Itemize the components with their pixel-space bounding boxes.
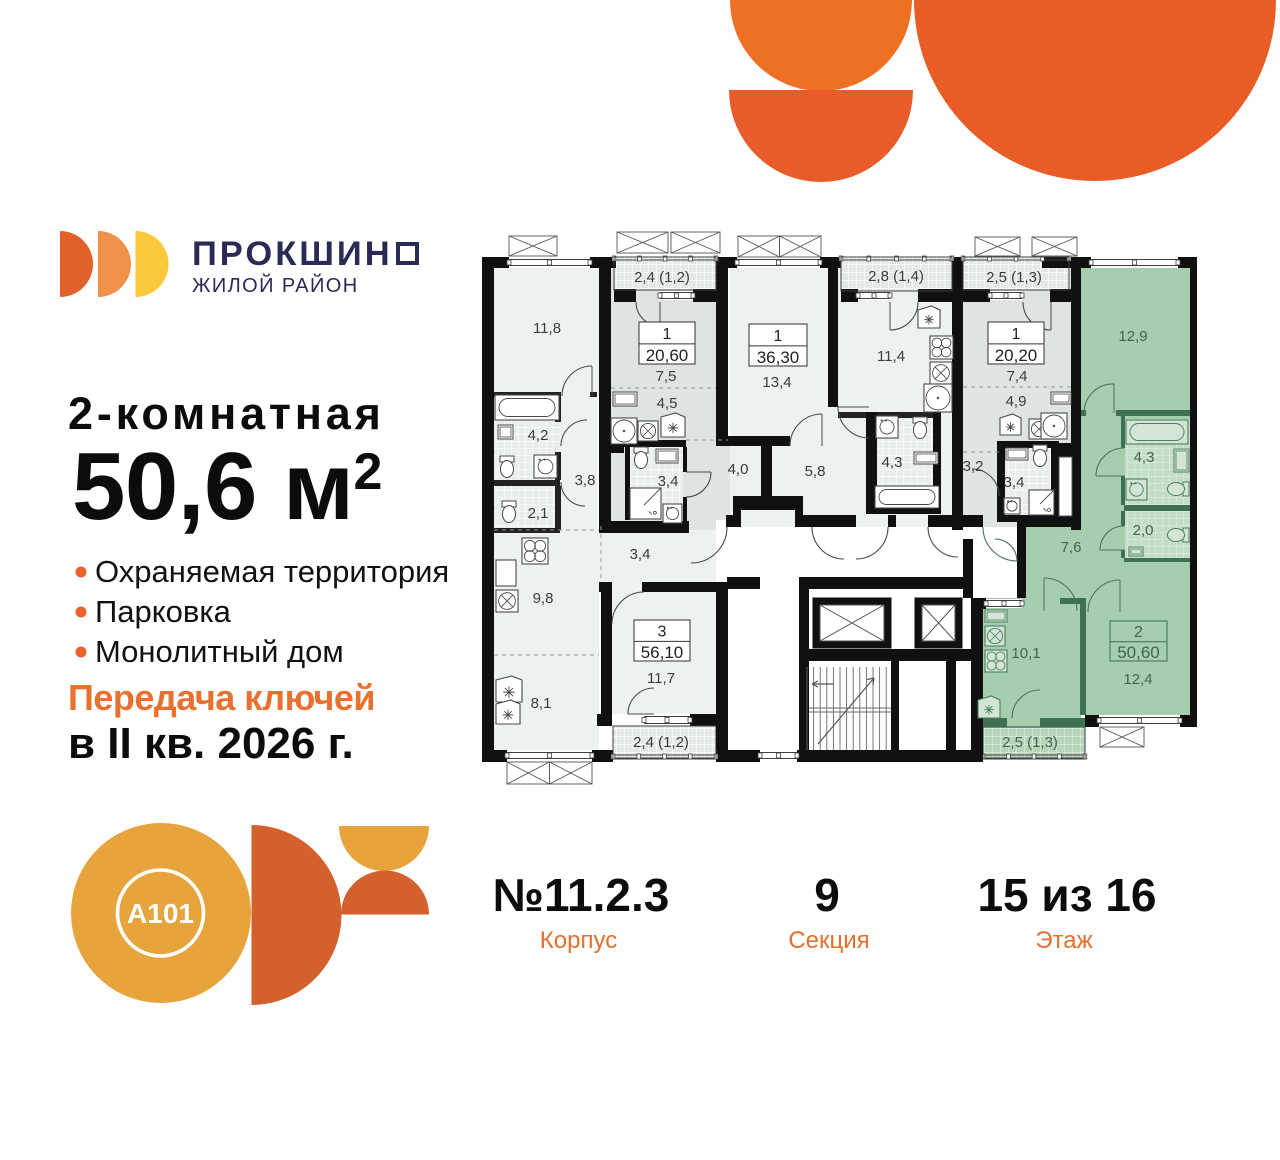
svg-text:4,2: 4,2	[528, 427, 549, 444]
svg-text:4,9: 4,9	[1006, 393, 1027, 410]
svg-text:1: 1	[1012, 326, 1021, 343]
svg-text:11,8: 11,8	[533, 320, 561, 337]
svg-text:1: 1	[774, 328, 783, 345]
svg-text:13,4: 13,4	[762, 374, 791, 391]
svg-text:11,4: 11,4	[877, 348, 905, 365]
svg-text:2: 2	[1134, 624, 1143, 641]
svg-text:3,4: 3,4	[1004, 474, 1025, 491]
svg-text:2,8 (1,4): 2,8 (1,4)	[868, 268, 924, 285]
svg-text:3,2: 3,2	[963, 458, 984, 475]
svg-text:2,5 (1,3): 2,5 (1,3)	[986, 269, 1042, 286]
svg-text:9,8: 9,8	[533, 590, 554, 607]
svg-text:4,0: 4,0	[728, 461, 749, 478]
svg-text:12,4: 12,4	[1123, 671, 1152, 688]
svg-text:3: 3	[658, 623, 667, 640]
svg-text:3,8: 3,8	[575, 472, 596, 489]
svg-text:7,4: 7,4	[1007, 368, 1028, 385]
svg-text:4,3: 4,3	[882, 454, 903, 471]
svg-text:10,1: 10,1	[1011, 645, 1040, 662]
svg-text:4,5: 4,5	[657, 395, 678, 412]
svg-text:7,6: 7,6	[1061, 539, 1082, 556]
svg-text:2,4 (1,2): 2,4 (1,2)	[633, 734, 689, 751]
svg-text:8,1: 8,1	[531, 695, 552, 712]
svg-text:36,30: 36,30	[757, 348, 800, 367]
svg-text:A101: A101	[127, 898, 194, 929]
svg-text:50,60: 50,60	[1117, 643, 1160, 662]
svg-text:2,1: 2,1	[528, 505, 549, 522]
svg-text:3,4: 3,4	[658, 473, 679, 490]
svg-text:20,60: 20,60	[646, 346, 689, 365]
svg-text:2,5 (1,3): 2,5 (1,3)	[1002, 734, 1058, 751]
svg-text:7,5: 7,5	[656, 368, 677, 385]
svg-text:20,20: 20,20	[995, 346, 1038, 365]
svg-text:56,10: 56,10	[641, 643, 684, 662]
svg-text:1: 1	[663, 326, 672, 343]
svg-text:2,0: 2,0	[1133, 522, 1154, 539]
svg-text:3,4: 3,4	[630, 546, 651, 563]
svg-text:12,9: 12,9	[1118, 328, 1147, 345]
svg-text:5,8: 5,8	[805, 463, 826, 480]
svg-text:11,7: 11,7	[647, 670, 675, 687]
svg-text:2,4 (1,2): 2,4 (1,2)	[634, 269, 690, 286]
svg-text:4,3: 4,3	[1134, 449, 1155, 466]
